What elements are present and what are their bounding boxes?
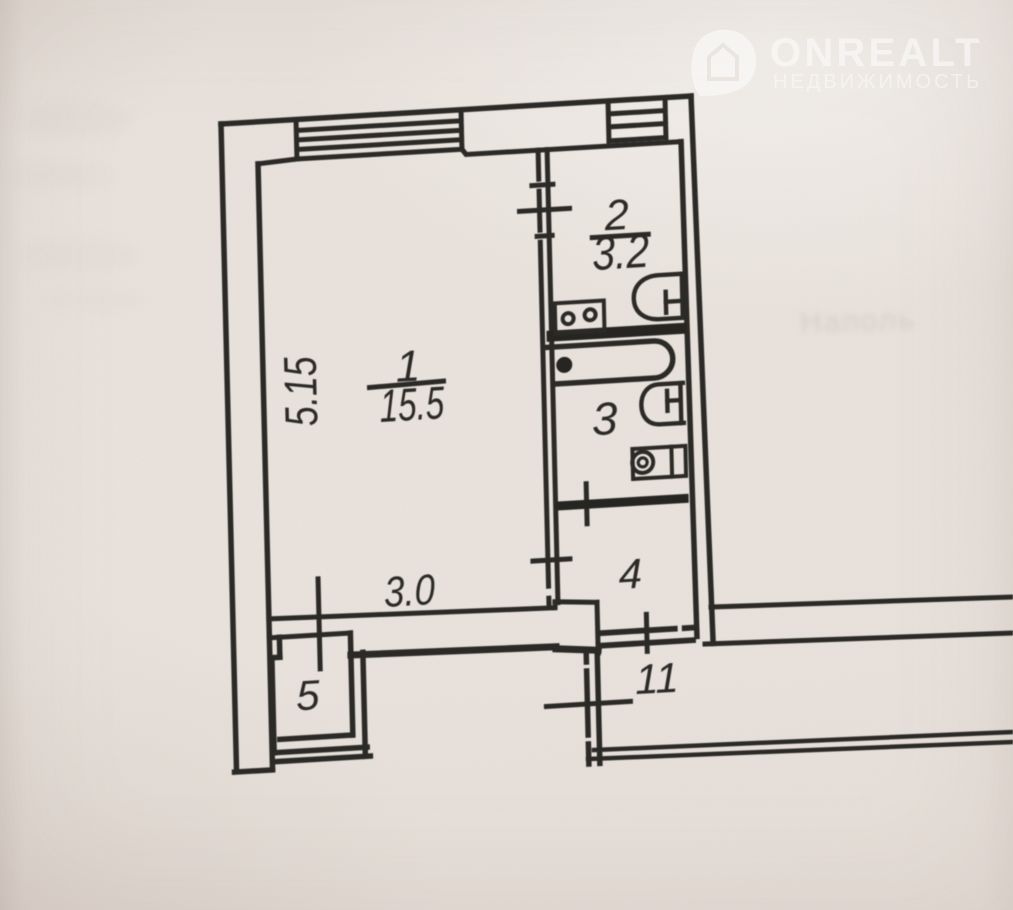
- svg-text:3.0: 3.0: [383, 566, 435, 616]
- svg-text:3: 3: [591, 392, 618, 445]
- svg-text:5.15: 5.15: [274, 354, 327, 428]
- svg-text:11: 11: [635, 654, 680, 704]
- svg-text:4: 4: [618, 550, 642, 598]
- svg-text:5: 5: [296, 671, 321, 719]
